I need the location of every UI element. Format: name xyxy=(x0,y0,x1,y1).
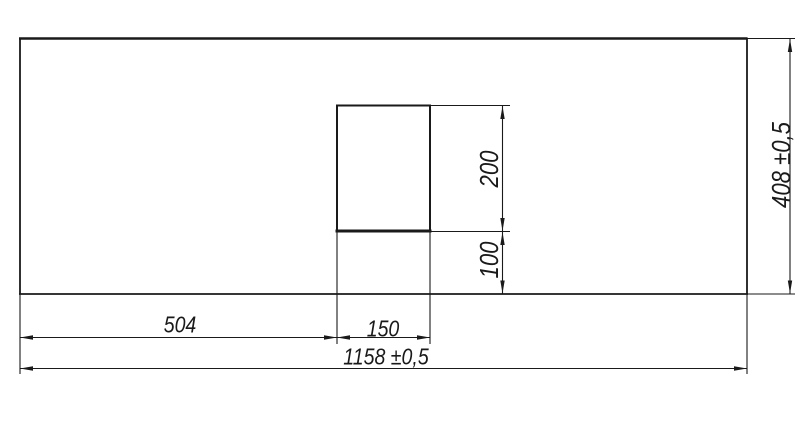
dimension-label-cutout-width: 150 xyxy=(367,318,400,341)
drawing-linework xyxy=(0,0,800,439)
arrow-100-bottom xyxy=(500,281,504,294)
arrow-504-left xyxy=(20,335,33,339)
arrow-1158-right xyxy=(734,366,747,370)
arrow-504-right xyxy=(324,335,337,339)
dimension-label-cutout-height: 200 xyxy=(476,151,502,188)
arrow-150-left xyxy=(337,335,350,339)
dimension-label-cutout-offset: 504 xyxy=(164,314,197,337)
arrow-200-top xyxy=(500,106,504,119)
dimension-label-cutout-bottom-distance: 100 xyxy=(476,242,502,279)
arrow-408-top xyxy=(788,39,792,52)
arrow-1158-left xyxy=(20,366,33,370)
technical-drawing-canvas: 504 150 1158 ±0,5 200 100 408 ±0,5 xyxy=(0,0,800,439)
dimension-label-total-height: 408 ±0,5 xyxy=(768,122,794,208)
dimension-label-total-width: 1158 ±0,5 xyxy=(343,346,428,369)
cutout-outline xyxy=(336,105,432,232)
arrow-408-bottom xyxy=(788,281,792,294)
dimension-arrows xyxy=(20,39,792,371)
dimension-lines xyxy=(20,39,790,369)
extension-lines xyxy=(20,39,795,375)
arrow-200-bottom xyxy=(500,218,504,231)
arrow-150-right xyxy=(417,335,430,339)
panel-outline xyxy=(19,38,748,295)
